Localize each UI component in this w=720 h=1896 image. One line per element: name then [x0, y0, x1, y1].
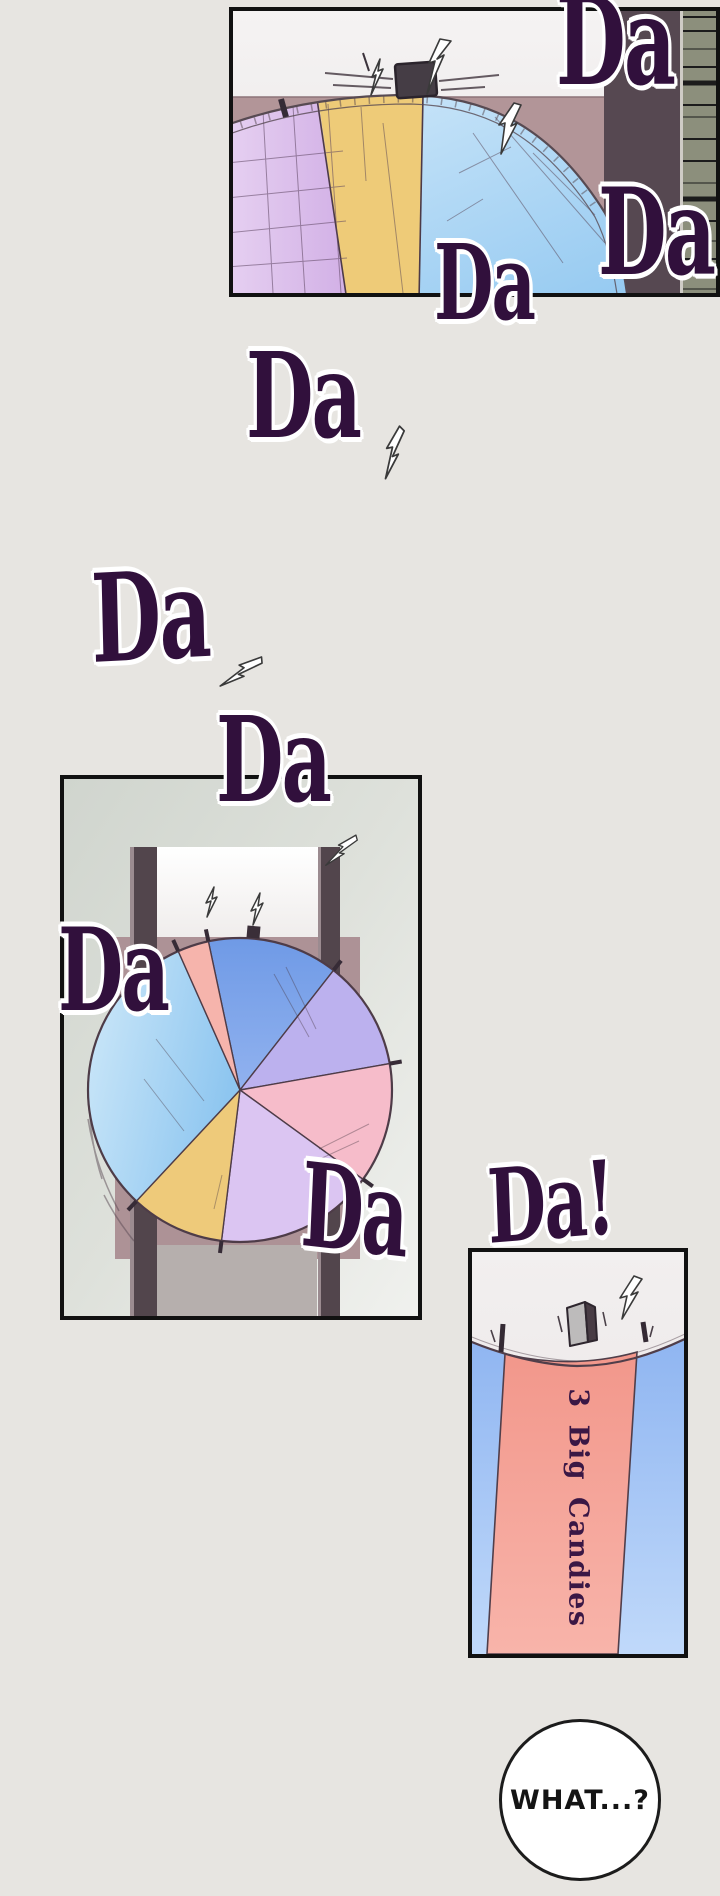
sfx-da: Da: [556, 0, 674, 100]
wheel-top-marker: [246, 925, 260, 938]
prize-label: 3 Big Candies: [563, 1388, 594, 1627]
speed-doodle-icon: [382, 424, 410, 482]
sfx-da: Da: [598, 176, 714, 290]
sfx-da-exclaim: Da!: [486, 1150, 615, 1257]
stand-backdrop: [157, 847, 318, 941]
speech-bubble-text: WHAT...?: [510, 1785, 650, 1816]
sfx-da: Da: [299, 1150, 409, 1272]
sfx-da: Da: [246, 340, 360, 452]
speech-bubble: WHAT...?: [499, 1719, 661, 1881]
stand-base: [155, 1245, 317, 1316]
sfx-da: Da: [434, 234, 534, 333]
sfx-da: Da: [90, 556, 211, 678]
sfx-da: Da: [216, 704, 330, 816]
sfx-da: Da: [58, 916, 168, 1024]
